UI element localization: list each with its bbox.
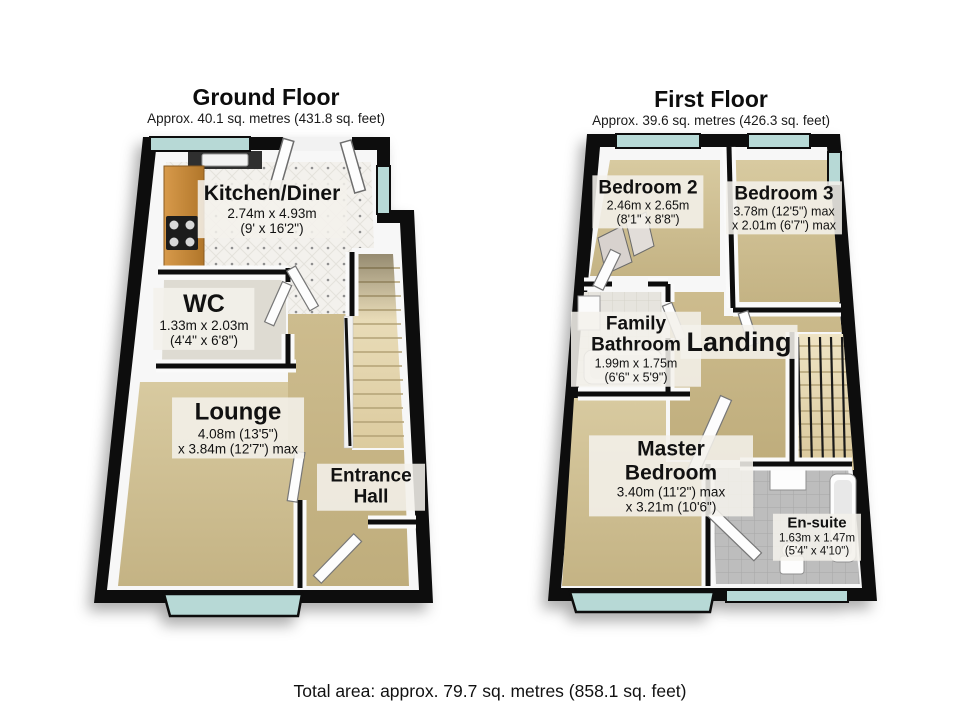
hob xyxy=(166,216,198,250)
room-name: WC xyxy=(159,290,248,318)
room-label-wc: WC 1.33m x 2.03m (4'4" x 6'8") xyxy=(153,288,254,350)
room-dim-metric: 1.63m x 1.47m xyxy=(779,533,855,546)
room-name: Family Bathroom xyxy=(577,314,695,357)
ground-floor-title: Ground Floor Approx. 40.1 sq. metres (43… xyxy=(147,85,385,126)
room-dim-imperial: (4'4" x 6'8") xyxy=(159,333,248,348)
room-dim-imperial: (8'1" x 8'8") xyxy=(598,213,697,227)
room-name: Lounge xyxy=(178,399,298,426)
master-bay-window xyxy=(570,592,714,612)
room-name: Bedroom 2 xyxy=(598,177,697,198)
room-dim-imperial: x 3.21m (10'6") xyxy=(595,500,747,515)
room-dim-imperial: (5'4" x 4'10") xyxy=(779,545,855,558)
bedroom3-window xyxy=(748,134,810,148)
kitchen-window xyxy=(150,137,250,151)
room-label-ensuite: En-suite 1.63m x 1.47m (5'4" x 4'10") xyxy=(773,514,861,561)
room-dim-metric: 3.78m (12'5") max xyxy=(732,205,836,219)
room-dim-metric: 3.40m (11'2") max xyxy=(595,484,747,499)
room-dim-metric: 2.74m x 4.93m xyxy=(204,206,341,221)
room-dim-metric: 2.46m x 2.65m xyxy=(598,199,697,213)
room-name: Kitchen/Diner xyxy=(204,182,341,206)
sink xyxy=(202,154,248,166)
ensuite-sink xyxy=(770,470,806,490)
first-floor-title: First Floor Approx. 39.6 sq. metres (426… xyxy=(592,87,830,128)
room-dim-metric: 1.99m x 1.75m xyxy=(577,356,695,370)
room-name: Landing xyxy=(687,327,792,357)
room-label-kitchen: Kitchen/Diner 2.74m x 4.93m (9' x 16'2") xyxy=(198,180,347,238)
room-dim-imperial: (9' x 16'2") xyxy=(204,221,341,236)
room-label-landing: Landing xyxy=(681,325,798,359)
room-dim-imperial: (6'6" x 5'9") xyxy=(577,370,695,384)
room-dim-metric: 4.08m (13'5") xyxy=(178,426,298,441)
room-name: Entrance Hall xyxy=(323,466,419,509)
floor-subtitle-text: Approx. 40.1 sq. metres (431.8 sq. feet) xyxy=(147,111,385,126)
room-label-lounge: Lounge 4.08m (13'5") x 3.84m (12'7") max xyxy=(172,397,304,458)
room-name: En-suite xyxy=(779,516,855,533)
room-name: Master Bedroom xyxy=(595,437,747,484)
room-dim-imperial: x 2.01m (6'7") max xyxy=(732,219,836,233)
bedroom2-window xyxy=(616,134,700,148)
side-window xyxy=(377,166,390,214)
room-name: Bedroom 3 xyxy=(732,183,836,204)
floor-title-text: First Floor xyxy=(592,87,830,111)
room-dim-metric: 1.33m x 2.03m xyxy=(159,318,248,333)
first-rear-window xyxy=(726,590,848,602)
lounge-bay-window xyxy=(164,594,302,616)
floor-title-text: Ground Floor xyxy=(147,85,385,109)
room-label-master-bedroom: Master Bedroom 3.40m (11'2") max x 3.21m… xyxy=(589,435,753,516)
room-label-bedroom3: Bedroom 3 3.78m (12'5") max x 2.01m (6'7… xyxy=(726,181,842,234)
room-label-entrance-hall: Entrance Hall xyxy=(317,464,425,511)
room-dim-imperial: x 3.84m (12'7") max xyxy=(178,441,298,456)
total-area-text: Total area: approx. 79.7 sq. metres (858… xyxy=(294,681,687,702)
room-label-bedroom2: Bedroom 2 2.46m x 2.65m (8'1" x 8'8") xyxy=(592,175,703,228)
floor-subtitle-text: Approx. 39.6 sq. metres (426.3 sq. feet) xyxy=(592,113,830,128)
